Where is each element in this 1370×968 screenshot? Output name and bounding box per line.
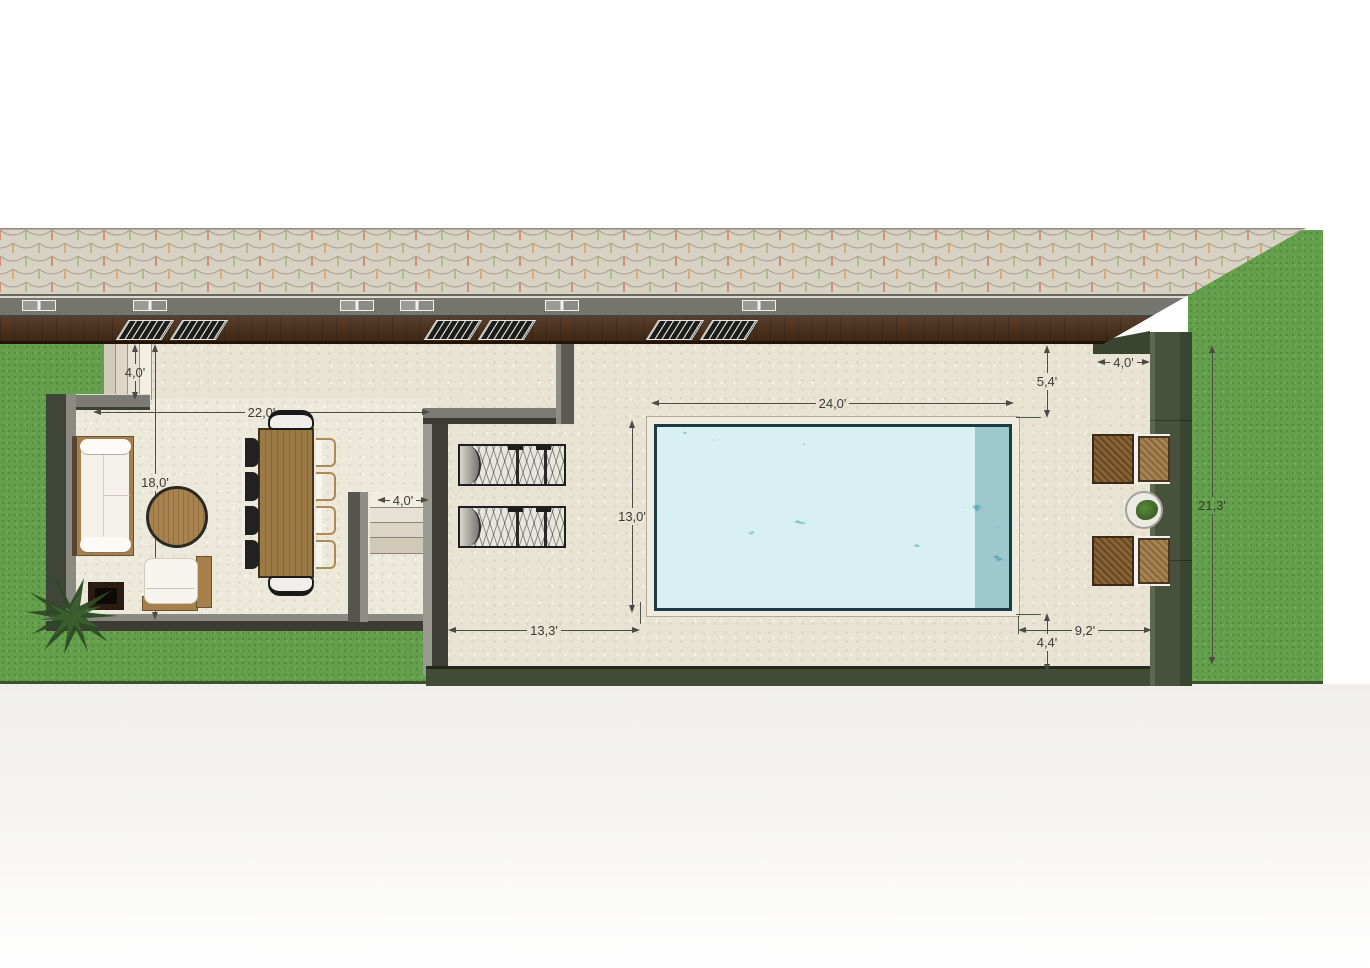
sofa (72, 436, 134, 556)
wicker-recliner-seat (1092, 536, 1134, 586)
dining-chair-right (316, 472, 336, 501)
dimension-stair-width: 4,0' (377, 493, 429, 507)
dimension-deck-top: 5,4' (1027, 345, 1067, 418)
dimension-label: 4,0' (390, 494, 417, 507)
dimension-line (1098, 630, 1144, 631)
sofa-armrest (80, 439, 131, 454)
dimension-line (1137, 362, 1142, 363)
wicker-recliner-seat (1092, 434, 1134, 484)
stair-wall-right (423, 408, 448, 676)
dining-table (258, 428, 314, 578)
fascia-window (545, 300, 579, 311)
dimension-line (632, 428, 633, 508)
dimension-label: 21,3' (1198, 497, 1226, 514)
dimension-line (849, 403, 1006, 404)
dimension-deck-corner: 4,0' (1097, 355, 1150, 369)
dimension-label: 13,3' (527, 624, 561, 637)
dimension-line (416, 500, 421, 501)
lounge-chair (142, 556, 212, 612)
dimension-line (1212, 353, 1213, 497)
page-bottom-margin (0, 684, 1370, 968)
sun-lounger-crossbar (544, 508, 547, 546)
dimension-walkway-left: 13,3' (448, 623, 640, 637)
sofa-cushion-seam (104, 495, 130, 496)
stair-wall-left (348, 492, 368, 622)
dimension-label: 4,0' (1110, 356, 1137, 369)
garden-wall-bottom (426, 666, 1192, 686)
dimension-line (632, 525, 633, 605)
stair-tread (370, 508, 423, 523)
dining-chair-head (268, 576, 314, 596)
sun-lounger-crossbar (516, 446, 519, 484)
fascia-window (22, 300, 56, 311)
dimension-garden-side: 21,3' (1192, 345, 1232, 665)
fascia-window (742, 300, 776, 311)
round-coffee-table (146, 486, 208, 548)
fascia-window (340, 300, 374, 311)
dimension-line (456, 630, 527, 631)
sun-lounger-tab (536, 446, 551, 450)
dimension-line (1047, 353, 1048, 373)
wicker-recliner-back (1138, 436, 1170, 482)
terrace-edge-wall-horizontal (423, 408, 574, 424)
stair-tread (370, 523, 423, 538)
dimension-label: 9,2' (1072, 624, 1099, 637)
sofa-armrest (80, 537, 131, 552)
dimension-line (1026, 630, 1072, 631)
dining-chair-head (268, 410, 314, 430)
dimension-deck-bottom: 4,4' (1027, 613, 1067, 672)
dining-chair-right (316, 438, 336, 467)
terrace-edge-wall-vertical (556, 340, 574, 424)
dining-chair-right (316, 540, 336, 569)
lounge-chair-cushion-fold (146, 588, 194, 589)
dimension-pool-width: 13,0' (612, 420, 652, 613)
sun-lounger-tab (508, 446, 523, 450)
dining-chair-left (242, 540, 259, 569)
roof-fascia-band (0, 296, 1320, 317)
dimension-deck-right: 9,2' (1018, 623, 1152, 637)
potted-plant (1136, 500, 1158, 520)
wicker-recliner (1092, 434, 1170, 484)
dimension-line (561, 630, 632, 631)
garden-side-table (1125, 491, 1163, 529)
fascia-window (400, 300, 434, 311)
lounge-chair-frame (196, 556, 212, 608)
dimension-line (659, 403, 816, 404)
dimension-line (1047, 390, 1048, 410)
dining-chair-left (242, 472, 259, 501)
sun-lounger (458, 506, 566, 548)
floor-plan-canvas: 4,0' 22,0' 18,0' 4,0' 13,3' 13,0' 24,0' … (0, 0, 1370, 968)
dimension-line (155, 352, 156, 474)
wicker-recliner (1092, 536, 1170, 586)
dimension-pool-length: 24,0' (651, 396, 1014, 410)
sun-lounger-headrest (460, 508, 481, 546)
stair-tread (370, 538, 423, 554)
wall-seam (1150, 420, 1192, 421)
corner-plant (24, 572, 120, 654)
sun-lounger (458, 444, 566, 486)
fascia-window (133, 300, 167, 311)
dimension-label: 5,4' (1037, 373, 1058, 390)
pool-water (654, 424, 1012, 611)
roof-assembly (0, 228, 1320, 344)
sun-lounger-crossbar (516, 508, 519, 546)
roof-tiles (0, 228, 1320, 296)
lounge-chair-cushion (144, 558, 198, 604)
wicker-recliner-back (1138, 538, 1170, 584)
dimension-line (1047, 651, 1048, 664)
sun-lounger-tab (508, 508, 523, 512)
dining-chair-right (316, 506, 336, 535)
sun-lounger-crossbar (544, 446, 547, 484)
sun-lounger-tab (536, 508, 551, 512)
sun-lounger-headrest (460, 446, 481, 484)
dimension-label: 13,0' (618, 508, 646, 525)
dimension-line (1212, 514, 1213, 658)
dimension-label: 24,0' (816, 397, 850, 410)
dining-chair-left (242, 438, 259, 467)
dining-chair-left (242, 506, 259, 535)
